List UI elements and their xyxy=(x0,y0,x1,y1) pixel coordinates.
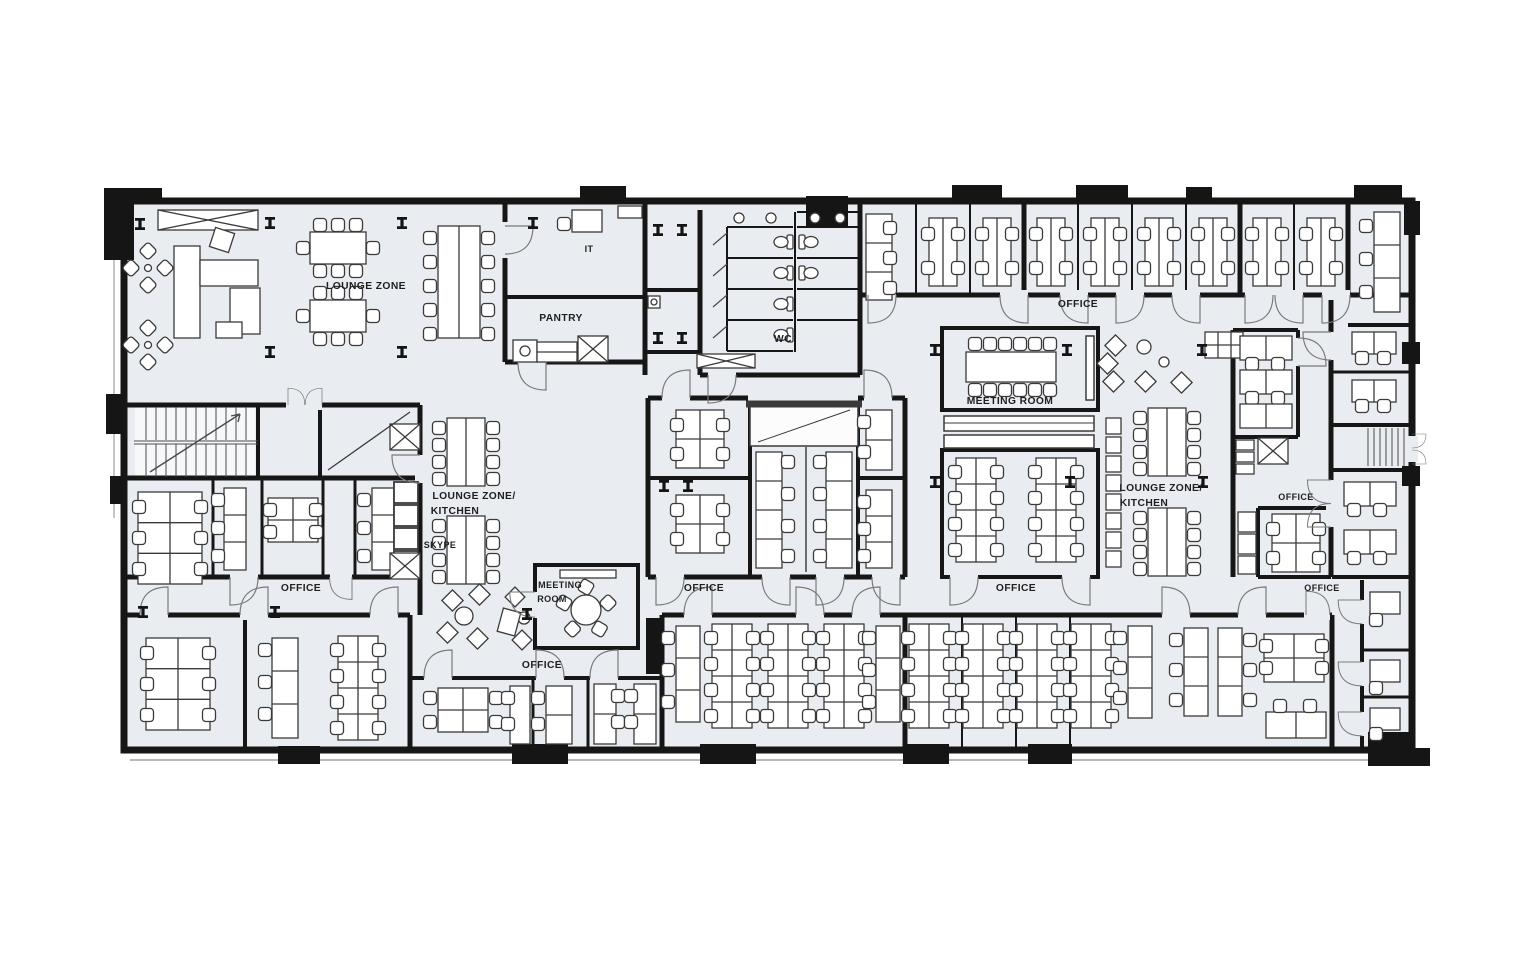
room-label-pantry: PANTRY xyxy=(539,313,583,324)
room-label-lounge-kitchen-east-line1: LOUNGE ZONE/ xyxy=(1119,483,1202,494)
room-label-lounge-kitchen-east-line2: KITCHEN xyxy=(1120,498,1169,509)
room-label-office-west: OFFICE xyxy=(281,583,321,594)
room-label-office-center: OFFICE xyxy=(684,583,724,594)
room-label-office-east-upper: OFFICE xyxy=(1278,492,1313,502)
room-label-lounge-kitchen-west-line1: LOUNGE ZONE/ xyxy=(432,491,515,502)
floor-plan-canvas: LOUNGE ZONE IT PANTRY WC OFFICE MEETING … xyxy=(0,0,1536,970)
room-label-meeting-room-main: MEETING ROOM xyxy=(967,396,1054,407)
room-label-it: IT xyxy=(585,244,594,254)
room-label-skype: SKYPE xyxy=(424,540,457,550)
room-label-office-south: OFFICE xyxy=(522,660,562,671)
room-label-lounge-kitchen-west-line2: KITCHEN xyxy=(431,506,480,517)
room-label-wc: WC xyxy=(774,334,792,345)
room-label-office-mid-east: OFFICE xyxy=(996,583,1036,594)
room-label-lounge-zone: LOUNGE ZONE xyxy=(326,281,406,292)
room-label-meeting-room-small-line2: ROOM xyxy=(537,594,567,604)
floor-plan-svg: LOUNGE ZONE IT PANTRY WC OFFICE MEETING … xyxy=(0,0,1536,970)
room-label-office-east-lower: OFFICE xyxy=(1304,583,1339,593)
room-label-meeting-room-small-line1: MEETING xyxy=(538,580,582,590)
room-label-office-north: OFFICE xyxy=(1058,299,1098,310)
